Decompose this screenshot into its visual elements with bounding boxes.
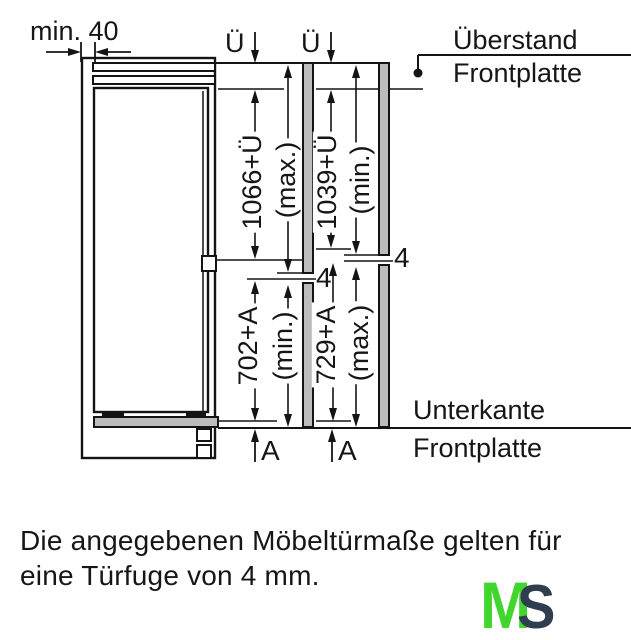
dim-upper-left-value: 1066+Ü <box>238 131 266 232</box>
bottom-gap-symbol-right: A <box>338 436 357 465</box>
appliance-body <box>94 88 208 412</box>
front-panel-right-upper <box>379 63 389 255</box>
arrow-down-icon <box>251 50 259 63</box>
dim-upper-right-value: 1039+Ü <box>313 131 341 232</box>
bottom-gap-symbol-left: A <box>261 436 280 465</box>
arrow-right-icon <box>68 48 81 56</box>
leader-dot-icon <box>414 69 423 78</box>
door-gap-left: 4 <box>316 263 332 292</box>
dim-lower-right-value: 729+A <box>312 303 340 388</box>
logo-letter-s: S <box>517 577 555 639</box>
dim-upper-right-qualifier: (min.) <box>346 143 374 218</box>
cabinet-top-rails <box>93 63 215 84</box>
overhang-label-line1: Überstand <box>453 26 578 54</box>
bottom-edge-label-line1: Unterkante <box>413 396 545 424</box>
dim-lower-left-value: 702+A <box>234 304 262 389</box>
overhang-symbol-left: Ü <box>225 29 245 57</box>
installation-diagram: min. 40 Ü Ü Überstand Frontplatte 1066+Ü… <box>0 0 631 640</box>
arrow-left-icon <box>95 48 108 56</box>
note-line2: eine Türfuge von 4 mm. <box>20 561 320 590</box>
front-panel-right-lower <box>379 265 389 427</box>
dim-lower-right-qualifier: (max.) <box>345 302 373 385</box>
leveling-feet <box>197 429 211 458</box>
cabinet-outline <box>82 58 215 458</box>
overhang-symbol-right: Ü <box>301 29 321 57</box>
overhang-arrows <box>251 32 335 63</box>
arrow-up-icon <box>251 429 259 442</box>
dim-upper-left-qualifier: (max.) <box>272 139 300 222</box>
door-gap-right: 4 <box>394 243 410 272</box>
arrow-down-icon <box>327 50 335 63</box>
arrow-up-icon <box>328 429 336 442</box>
note-line1: Die angegebenen Möbeltürmaße gelten für <box>20 526 562 555</box>
bottom-edge-label-line2: Frontplatte <box>413 434 542 462</box>
overhang-label-line2: Frontplatte <box>453 59 582 87</box>
plinth-panel <box>94 417 218 427</box>
dim-lower-left-qualifier: (min.) <box>269 309 297 384</box>
min-gap-label: min. 40 <box>30 17 119 45</box>
hinge-notch <box>202 256 216 271</box>
